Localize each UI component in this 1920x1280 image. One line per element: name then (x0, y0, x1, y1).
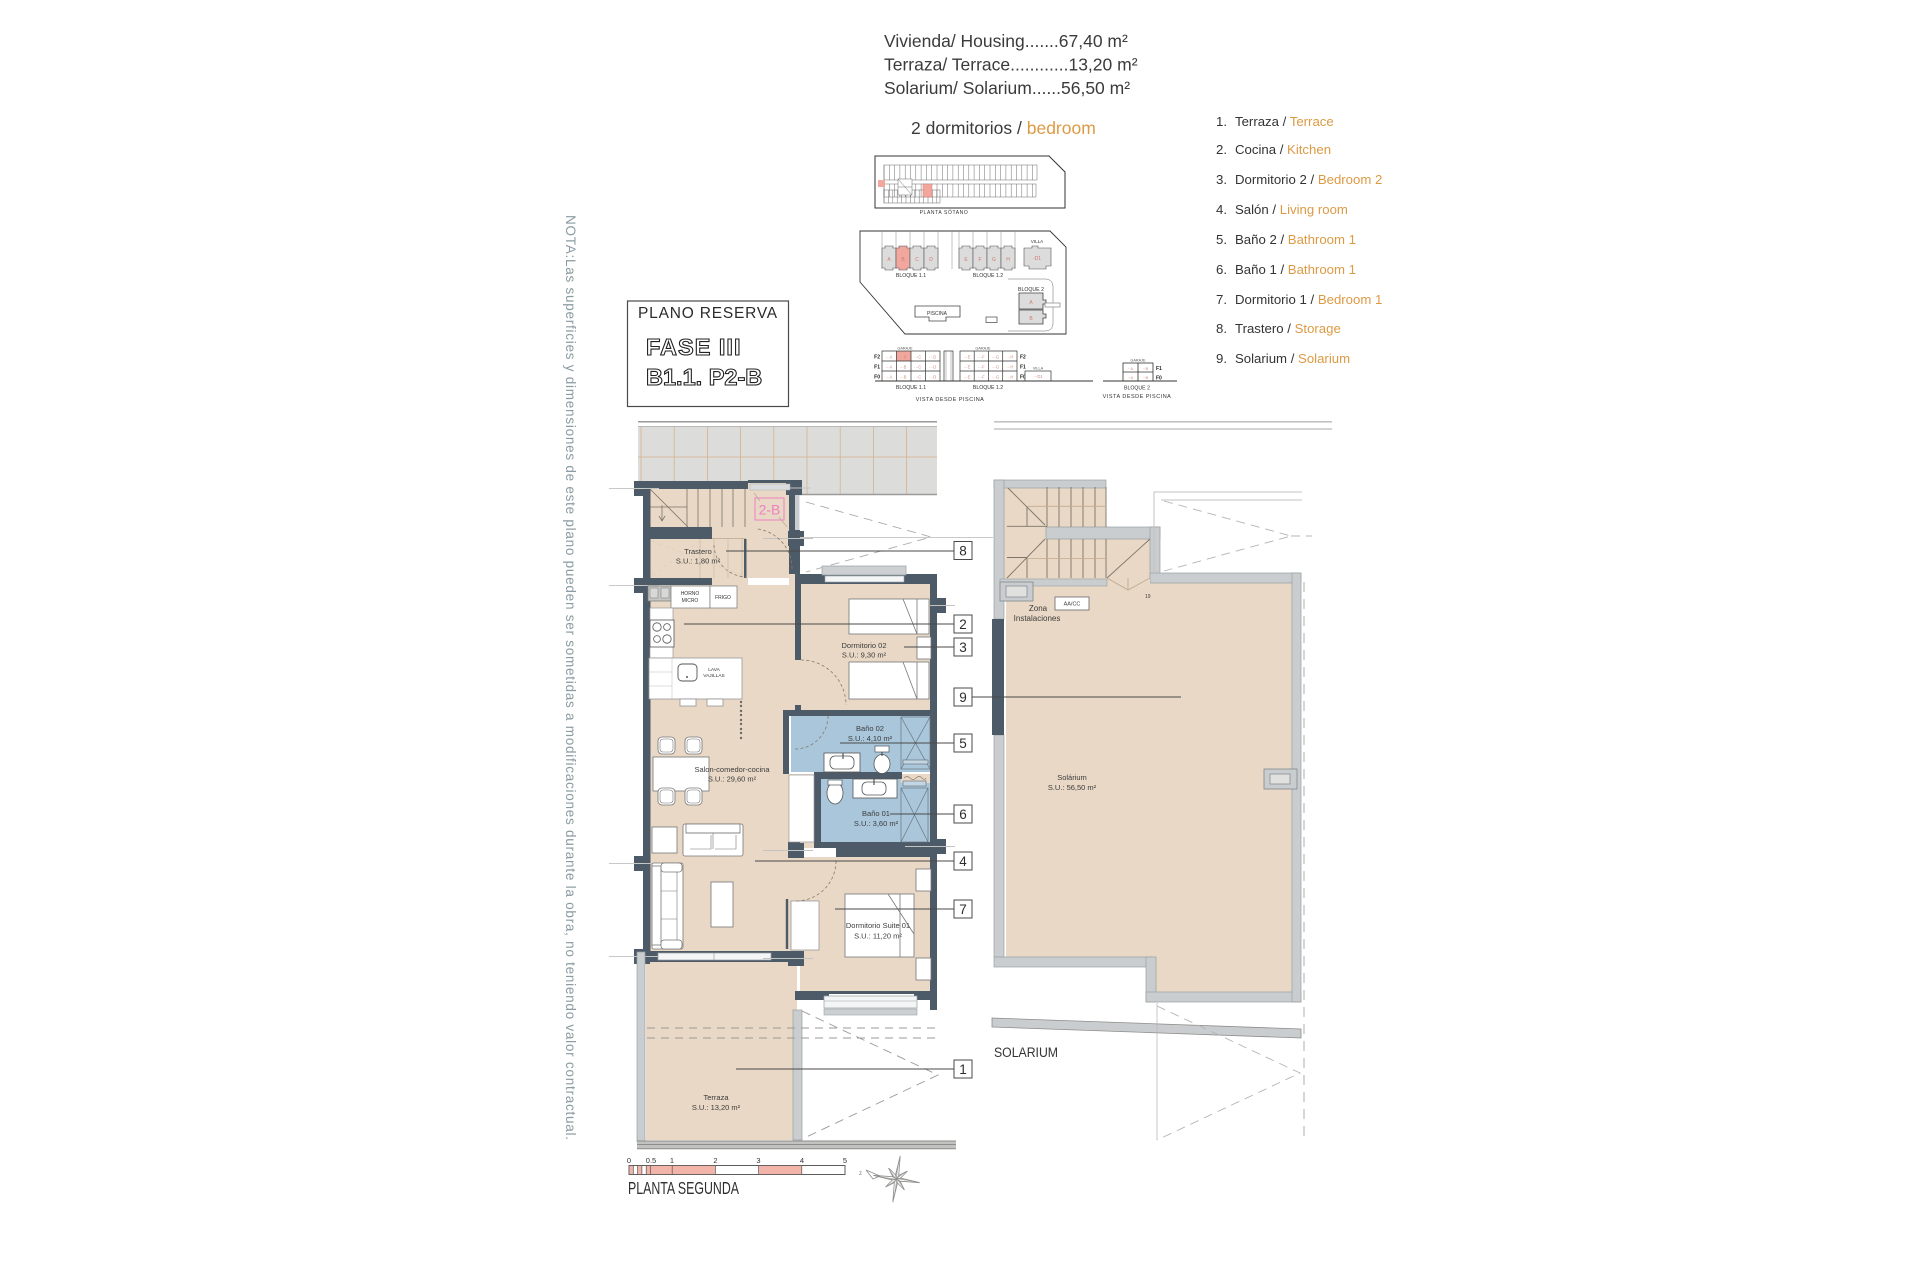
svg-text:1: 1 (959, 1062, 967, 1077)
svg-text:···A: ···A (886, 355, 893, 360)
svg-text:5: 5 (959, 736, 967, 751)
svg-text:PLANTA SEGUNDA: PLANTA SEGUNDA (628, 1178, 739, 1198)
svg-text:···A: ···A (886, 375, 893, 380)
svg-text:G: G (992, 257, 996, 263)
svg-text:Trastero / Storage: Trastero / Storage (1235, 321, 1341, 336)
svg-text:2: 2 (713, 1156, 717, 1165)
svg-text:7.: 7. (1216, 292, 1227, 307)
svg-text:···G: ···G (992, 365, 999, 370)
svg-text:0.5: 0.5 (646, 1156, 656, 1165)
svg-text:8: 8 (959, 543, 967, 558)
svg-text:Dormitorio 1 / Bedroom 1: Dormitorio 1 / Bedroom 1 (1235, 292, 1382, 307)
svg-text:1: 1 (670, 1156, 674, 1165)
svg-text:3.: 3. (1216, 172, 1227, 187)
svg-text:F2: F2 (874, 355, 880, 361)
svg-text:VAJILLAS: VAJILLAS (703, 673, 725, 679)
svg-text:SOLARIUM: SOLARIUM (994, 1045, 1058, 1060)
svg-text:S.U.: 1,80 m²: S.U.: 1,80 m² (676, 557, 721, 566)
svg-text:Terraza: Terraza (703, 1093, 729, 1102)
svg-text:···F: ···F (978, 375, 985, 380)
svg-text:2.: 2. (1216, 142, 1227, 157)
svg-text:···F: ···F (978, 365, 985, 370)
svg-text:Baño 2 / Bathroom 1: Baño 2 / Bathroom 1 (1235, 232, 1356, 247)
svg-text:GARAJE: GARAJE (897, 347, 913, 351)
svg-text:NOTA:Las superficies y dimensi: NOTA:Las superficies y dimensiones de es… (563, 215, 578, 1141)
svg-text:VISTA DESDE PISCINA: VISTA DESDE PISCINA (1103, 394, 1172, 400)
svg-text:···G: ···G (992, 355, 999, 360)
svg-text:H: H (1006, 257, 1010, 263)
svg-text:S.U.: 11,20 m²: S.U.: 11,20 m² (854, 932, 902, 941)
svg-text:···H: ···H (1006, 375, 1013, 380)
svg-text:4: 4 (959, 854, 967, 869)
svg-text:Solarium/ Solarium......56,50: Solarium/ Solarium......56,50 m² (884, 78, 1130, 98)
svg-text:Solárium: Solárium (1057, 773, 1087, 782)
svg-text:S.U.: 4,10 m²: S.U.: 4,10 m² (848, 734, 893, 743)
svg-text:GARAJE: GARAJE (975, 347, 991, 351)
svg-text:AA/CC: AA/CC (1064, 602, 1081, 608)
svg-text:Terraza/ Terrace............13: Terraza/ Terrace............13,20 m² (884, 55, 1138, 75)
svg-text:BLOQUE 1.2: BLOQUE 1.2 (973, 385, 1003, 391)
svg-text:5.: 5. (1216, 232, 1227, 247)
svg-text:9.: 9. (1216, 351, 1227, 366)
svg-text:Terraza / Terrace: Terraza / Terrace (1235, 114, 1334, 129)
svg-text:···G: ···G (992, 375, 999, 380)
svg-text:FRIGO: FRIGO (715, 595, 731, 601)
svg-text:5: 5 (843, 1156, 847, 1165)
svg-text:-D1: -D1 (1033, 256, 1041, 262)
svg-text:···E: ···E (964, 375, 971, 380)
svg-text:···B: ···B (900, 355, 907, 360)
svg-text:···B: ···B (900, 375, 907, 380)
svg-text:4: 4 (800, 1156, 804, 1165)
svg-text:2-B: 2-B (759, 502, 781, 518)
svg-text:Salón / Living room: Salón / Living room (1235, 202, 1348, 217)
svg-text:Baño 01: Baño 01 (862, 809, 890, 818)
svg-text:Trastero: Trastero (684, 547, 712, 556)
svg-text:··B: ··B (1143, 375, 1149, 380)
svg-text:F: F (978, 257, 981, 263)
svg-text:Vivienda/ Housing.......67,40: Vivienda/ Housing.......67,40 m² (884, 31, 1128, 51)
svg-text:8.: 8. (1216, 321, 1227, 336)
svg-text:VILLA: VILLA (1031, 239, 1044, 244)
svg-text:S.U.: 3,60 m²: S.U.: 3,60 m² (854, 819, 899, 828)
svg-text:Baño 1 / Bathroom 1: Baño 1 / Bathroom 1 (1235, 262, 1356, 277)
svg-text:BLOQUE 2: BLOQUE 2 (1124, 386, 1150, 392)
svg-text:1.: 1. (1216, 114, 1227, 129)
svg-text:Dormitorio Suite 01: Dormitorio Suite 01 (846, 921, 910, 930)
svg-text:3: 3 (756, 1156, 760, 1165)
svg-text:···E: ···E (964, 365, 971, 370)
svg-text:PISCINA: PISCINA (927, 311, 948, 317)
svg-text:C: C (915, 257, 919, 263)
svg-text:2 dormitorios / bedroom: 2 dormitorios / bedroom (911, 118, 1096, 138)
svg-text:6: 6 (959, 807, 967, 822)
svg-text:···D: ···D (929, 355, 936, 360)
svg-text:BLOQUE 1.1: BLOQUE 1.1 (896, 385, 926, 391)
svg-text:LAVA: LAVA (708, 667, 720, 673)
svg-text:F2: F2 (1020, 355, 1026, 361)
svg-text:··A: ··A (1128, 375, 1134, 380)
svg-text:6.: 6. (1216, 262, 1227, 277)
svg-text:GARAJE: GARAJE (1130, 359, 1146, 363)
svg-text:BLOQUE 1.1: BLOQUE 1.1 (896, 273, 926, 279)
svg-text:VISTA DESDE PISCINA: VISTA DESDE PISCINA (916, 397, 985, 403)
svg-text:PLANO RESERVA: PLANO RESERVA (638, 305, 778, 322)
svg-text:3: 3 (959, 640, 967, 655)
svg-text:···D1: ···D1 (1033, 374, 1043, 379)
svg-text:MICRO: MICRO (682, 598, 699, 604)
svg-text:0: 0 (627, 1156, 631, 1165)
svg-text:Solarium / Solarium: Solarium / Solarium (1235, 351, 1350, 366)
svg-text:Salon-comedor-cocina: Salon-comedor-cocina (694, 765, 770, 774)
svg-text:···E: ···E (964, 355, 971, 360)
svg-text:D: D (929, 257, 933, 263)
svg-text:···C: ···C (914, 375, 921, 380)
svg-text:Dormitorio 02: Dormitorio 02 (841, 641, 886, 650)
svg-text:VILLA: VILLA (1033, 367, 1044, 371)
svg-text:Zona: Zona (1029, 604, 1048, 613)
svg-text:··A: ··A (1128, 366, 1134, 371)
svg-text:···A: ···A (886, 365, 893, 370)
svg-text:F1: F1 (1156, 366, 1162, 372)
svg-text:FASE III: FASE III (646, 334, 742, 360)
svg-text:···D: ···D (929, 375, 936, 380)
svg-text:HORNO: HORNO (681, 591, 700, 597)
svg-text:9: 9 (959, 690, 967, 705)
svg-text:··B: ··B (1143, 366, 1149, 371)
svg-text:Cocina / Kitchen: Cocina / Kitchen (1235, 142, 1331, 157)
svg-text:···H: ···H (1006, 355, 1013, 360)
svg-text:Instalaciones: Instalaciones (1014, 614, 1061, 623)
svg-text:F1: F1 (874, 365, 880, 371)
svg-text:···C: ···C (914, 365, 921, 370)
svg-text:···D: ···D (929, 365, 936, 370)
svg-text:···C: ···C (914, 355, 921, 360)
svg-text:S.U.: 9,30 m²: S.U.: 9,30 m² (842, 651, 887, 660)
svg-text:2: 2 (959, 617, 967, 632)
svg-text:Baño 02: Baño 02 (856, 724, 884, 733)
svg-text:F0: F0 (874, 375, 880, 381)
svg-text:19: 19 (1145, 594, 1151, 600)
svg-text:S.U.: 56,50 m²: S.U.: 56,50 m² (1048, 783, 1097, 792)
svg-text:4.: 4. (1216, 202, 1227, 217)
svg-text:S.U.: 29,60 m²: S.U.: 29,60 m² (708, 775, 757, 784)
svg-text:Dormitorio 2 / Bedroom 2: Dormitorio 2 / Bedroom 2 (1235, 172, 1382, 187)
svg-text:z: z (859, 1171, 862, 1177)
svg-text:B1.1. P2-B: B1.1. P2-B (646, 364, 762, 390)
svg-text:PLANTA SÓTANO: PLANTA SÓTANO (920, 209, 969, 216)
svg-text:···F: ···F (978, 355, 985, 360)
svg-text:BLOQUE 2: BLOQUE 2 (1018, 287, 1044, 293)
svg-text:BLOQUE 1.2: BLOQUE 1.2 (973, 273, 1003, 279)
svg-text:S.U.: 13,20 m²: S.U.: 13,20 m² (692, 1103, 741, 1112)
svg-text:···B: ···B (900, 365, 907, 370)
svg-text:F1: F1 (1020, 365, 1026, 371)
svg-text:···H: ···H (1006, 365, 1013, 370)
svg-text:7: 7 (959, 902, 967, 917)
